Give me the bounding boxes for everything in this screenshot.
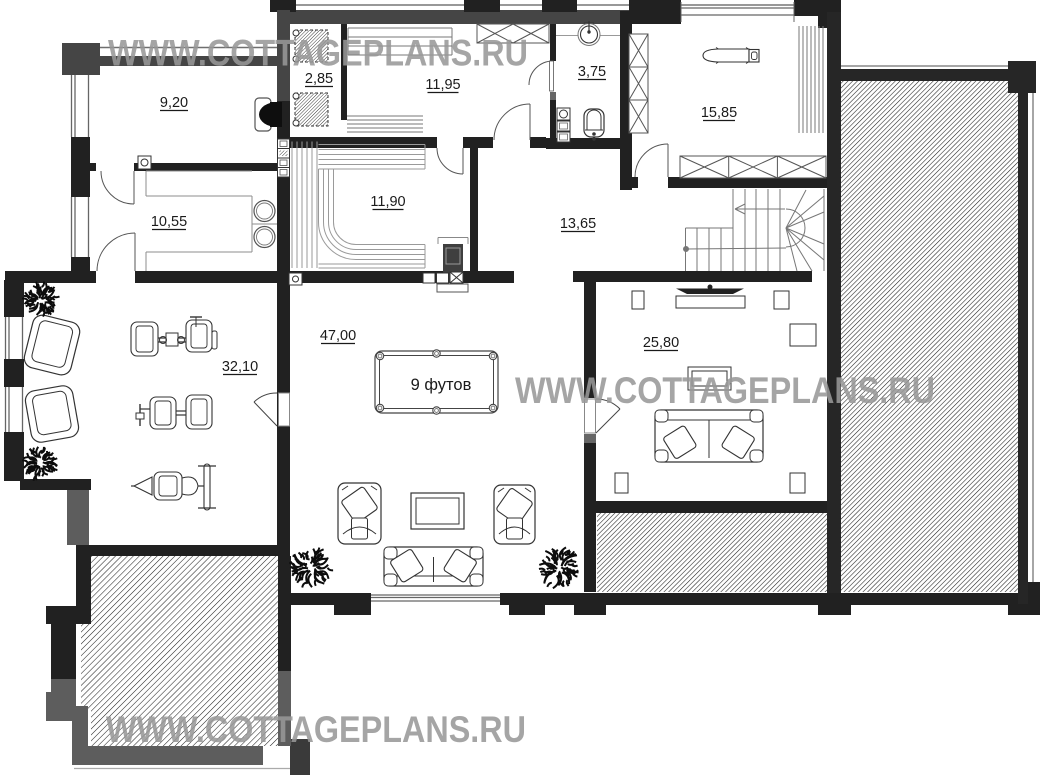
svg-text:9,20: 9,20 — [160, 95, 188, 111]
svg-text:11,90: 11,90 — [370, 194, 405, 210]
svg-text:WWW.COTTAGEPLANS.RU: WWW.COTTAGEPLANS.RU — [108, 33, 528, 74]
svg-text:11,95: 11,95 — [425, 77, 460, 93]
svg-text:32,10: 32,10 — [222, 359, 258, 375]
svg-text:3,75: 3,75 — [578, 64, 606, 80]
svg-text:15,85: 15,85 — [701, 105, 737, 121]
svg-text:13,65: 13,65 — [560, 216, 596, 232]
svg-text:47,00: 47,00 — [320, 328, 356, 344]
svg-text:25,80: 25,80 — [643, 335, 679, 351]
svg-text:WWW.COTTAGEPLANS.RU: WWW.COTTAGEPLANS.RU — [106, 709, 526, 750]
svg-text:WWW.COTTAGEPLANS.RU: WWW.COTTAGEPLANS.RU — [515, 370, 935, 411]
svg-text:10,55: 10,55 — [151, 214, 187, 230]
svg-text:9 футов: 9 футов — [411, 376, 472, 394]
